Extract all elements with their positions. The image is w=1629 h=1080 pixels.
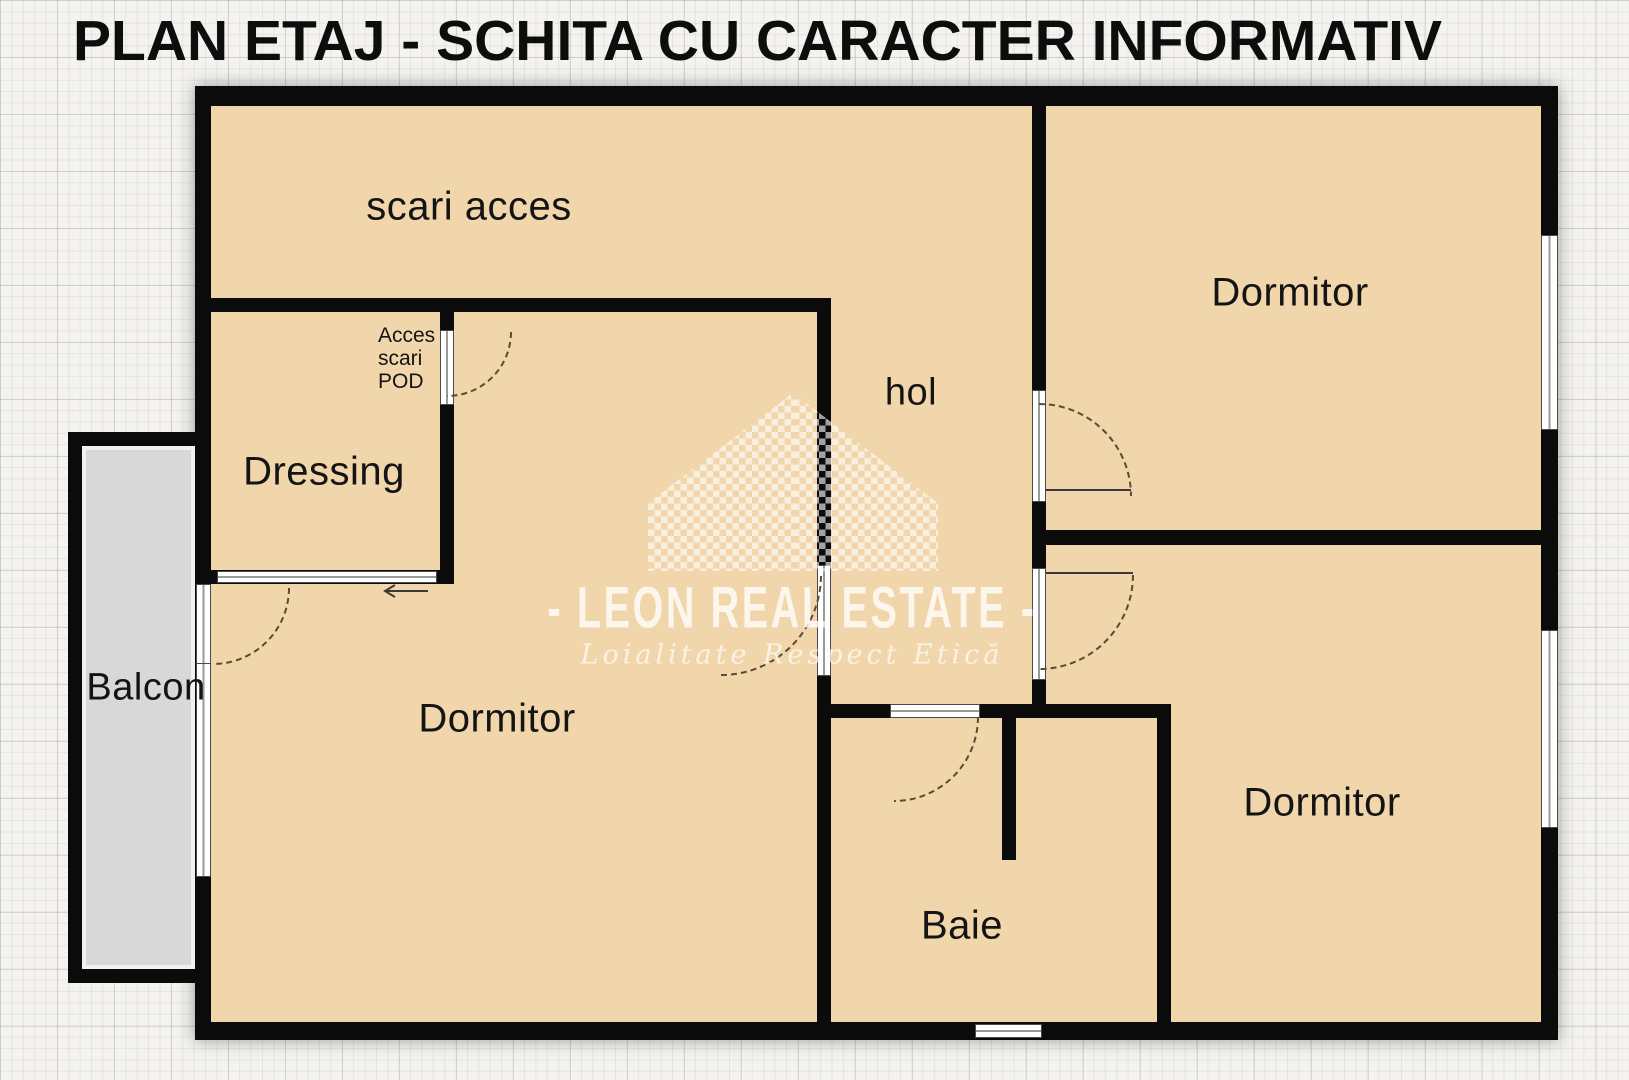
plan-title: PLAN ETAJ - SCHITA CU CARACTER INFORMATI… bbox=[73, 8, 1442, 74]
wall-outer-bottom bbox=[195, 1022, 1558, 1040]
room-label-dormitor-bottom-right: Dormitor bbox=[1243, 781, 1400, 826]
building-floor bbox=[211, 106, 1541, 1022]
door-opening-dormitor-left bbox=[817, 565, 831, 676]
balcony-door-glazing bbox=[196, 584, 211, 664]
wall-balcony-bottom bbox=[68, 969, 195, 983]
floor-plan-page: PLAN ETAJ - SCHITA CU CARACTER INFORMATI… bbox=[0, 0, 1629, 1080]
room-label-dressing: Dressing bbox=[243, 450, 405, 495]
wall-dormitor-right-divider bbox=[1046, 530, 1558, 545]
wall-scari-acces-bottom bbox=[195, 298, 831, 312]
room-label-balcon: Balcon bbox=[86, 667, 205, 710]
wall-baie-top bbox=[817, 704, 1171, 718]
window-dormitor-tr bbox=[1541, 235, 1558, 430]
room-label-acces-scari-pod: Acces scari POD bbox=[378, 324, 435, 393]
room-label-scari-acces: scari acces bbox=[366, 185, 572, 230]
door-opening-dormitor-br bbox=[1032, 568, 1046, 680]
wall-baie-right bbox=[1157, 704, 1171, 1040]
wall-outer-right bbox=[1541, 86, 1558, 1040]
door-opening-dormitor-tr bbox=[1032, 390, 1046, 502]
acces-scari-pod-line3: POD bbox=[378, 370, 435, 393]
wall-balcony-left bbox=[68, 432, 82, 983]
door-opening-pod bbox=[440, 330, 454, 405]
window-baie-bottom bbox=[975, 1024, 1042, 1038]
room-label-dormitor-left: Dormitor bbox=[418, 697, 575, 742]
room-label-dormitor-top-right: Dormitor bbox=[1211, 271, 1368, 316]
room-label-hol: hol bbox=[885, 372, 937, 415]
window-dormitor-br bbox=[1541, 630, 1558, 828]
acces-scari-pod-line2: scari bbox=[378, 347, 435, 370]
wall-balcony-top bbox=[68, 432, 195, 446]
wall-outer-top bbox=[195, 86, 1558, 106]
wall-outer-left bbox=[195, 86, 211, 1040]
sliding-door-dressing bbox=[217, 571, 437, 583]
door-opening-baie bbox=[890, 704, 980, 718]
room-label-baie: Baie bbox=[921, 904, 1003, 949]
wall-baie-stub bbox=[1002, 718, 1016, 860]
acces-scari-pod-line1: Acces bbox=[378, 324, 435, 347]
